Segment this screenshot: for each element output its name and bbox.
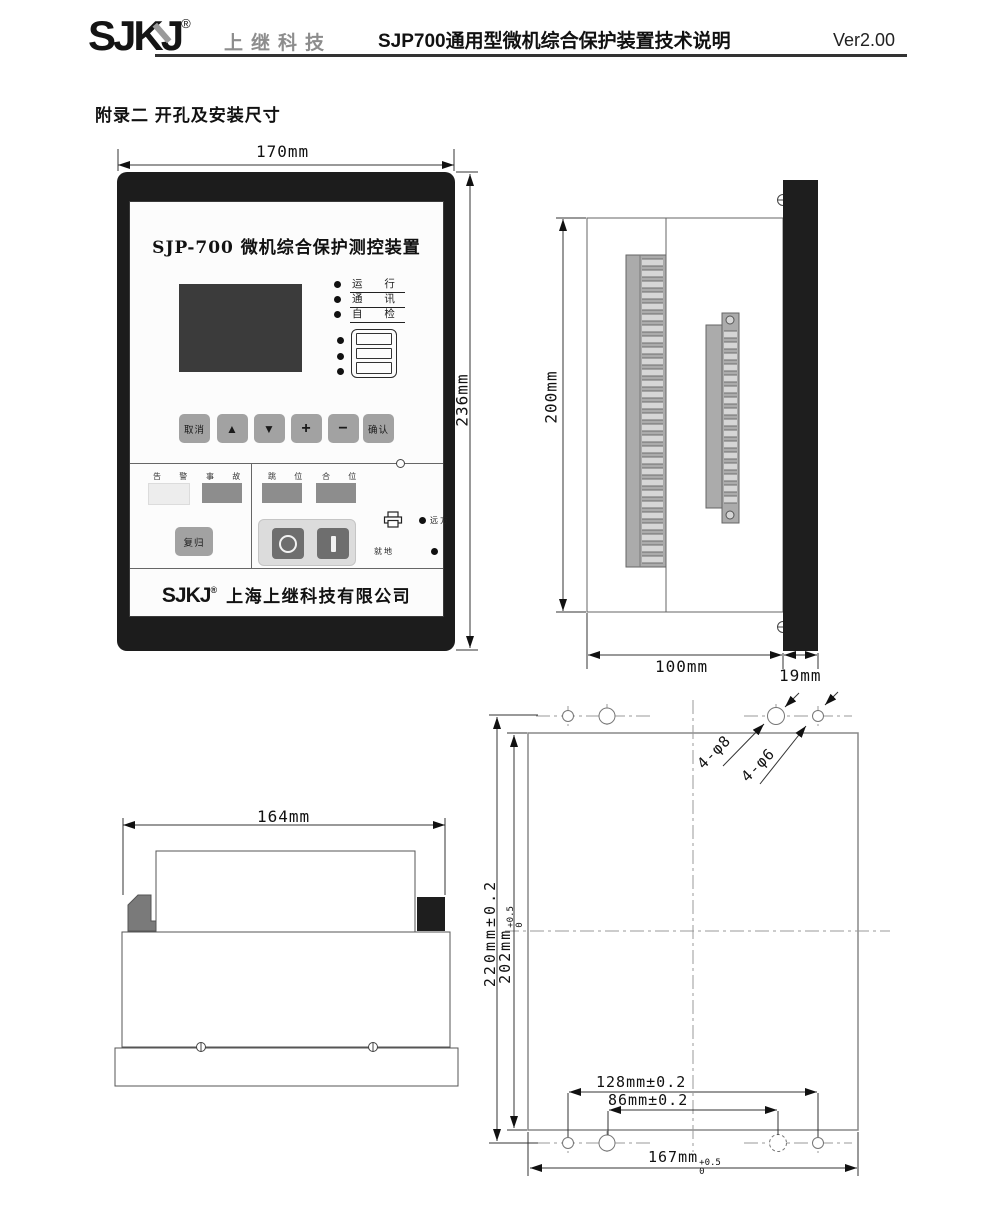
- tolerance-lower: 0: [699, 1168, 721, 1177]
- breaker-switch-group: [258, 519, 356, 566]
- panel-divider-bottom: [130, 568, 443, 569]
- dim-front-height: 236mm: [453, 373, 472, 426]
- label-slot-box: [351, 329, 397, 378]
- label-slot: [356, 333, 392, 345]
- local-led-icon: [431, 548, 438, 555]
- printer-icon: [383, 511, 403, 528]
- label-slot: [356, 362, 392, 374]
- panel-footer: SJKJ® 上海上继科技有限公司: [130, 582, 443, 608]
- slot-led-1-icon: [337, 337, 344, 344]
- panel-footer-logo: SJKJ®: [162, 584, 216, 608]
- dim-cutout-height-value: 202mm: [496, 929, 514, 984]
- comm-led-icon: [334, 296, 341, 303]
- remote-label: 远方: [430, 515, 450, 526]
- dim-cutout-height: 202mm+0.50: [496, 906, 524, 984]
- open-switch-button: [272, 528, 304, 559]
- confirm-button: 确认: [363, 414, 394, 443]
- fault-lamp-label: 事 故: [206, 471, 248, 482]
- label-slot: [356, 348, 392, 360]
- panel-title: SJP-700 微机综合保护测控装置: [130, 233, 443, 258]
- terminal-block-large-slots: [642, 257, 663, 565]
- panel-divider-vertical: [251, 463, 252, 568]
- dim-hole-span-outer: 128mm±0.2: [596, 1073, 686, 1091]
- selfcheck-led-label: 自 检: [350, 306, 405, 323]
- dim-cutout-width-value: 167mm: [648, 1148, 698, 1166]
- device-front-bezel: SJP-700 微机综合保护测控装置 运 行 通 讯 自 检: [117, 172, 455, 651]
- panel-seal-hole: [396, 459, 405, 468]
- selfcheck-led-icon: [334, 311, 341, 318]
- terminal-block-small-slots: [724, 329, 737, 505]
- close-lamp-label: 合 位: [322, 471, 364, 482]
- cancel-button: 取消: [179, 414, 210, 443]
- slot-led-2-icon: [337, 353, 344, 360]
- dim-hole-span-inner: 86mm±0.2: [608, 1091, 688, 1109]
- panel-footer-logo-text: SJKJ: [162, 584, 211, 607]
- run-led-icon: [334, 281, 341, 288]
- trip-lamp: [262, 483, 302, 503]
- tolerance-lower: 0: [516, 906, 525, 928]
- dim-side-depth: 100mm: [655, 657, 708, 676]
- local-label: 就地: [374, 546, 394, 557]
- manual-page: SJKJ® 上继科技 SJP700通用型微机综合保护装置技术说明 Ver2.00…: [0, 0, 1000, 1225]
- bottom-view-outline: [115, 851, 458, 1086]
- open-symbol-icon: [279, 535, 297, 553]
- close-lamp: [316, 483, 356, 503]
- side-view-outline: [587, 180, 818, 651]
- dim-cutout-width: 167mm+0.50: [648, 1148, 721, 1176]
- dim-bottom-width: 164mm: [257, 807, 310, 826]
- remote-led-icon: [419, 517, 426, 524]
- down-button: ▼: [254, 414, 285, 443]
- plus-button: +: [291, 414, 322, 443]
- device-front-face: SJP-700 微机综合保护测控装置 运 行 通 讯 自 检: [129, 201, 444, 617]
- dim-side-bezel: 19mm: [779, 666, 822, 685]
- dim-side-height: 200mm: [542, 370, 561, 423]
- fault-lamp: [202, 483, 242, 503]
- slot-led-3-icon: [337, 368, 344, 375]
- minus-button: −: [328, 414, 359, 443]
- panel-footer-registered-icon: ®: [210, 585, 216, 595]
- trip-lamp-label: 跳 位: [268, 471, 310, 482]
- dim-front-width: 170mm: [256, 142, 309, 161]
- panel-footer-company: 上海上继科技有限公司: [226, 582, 411, 607]
- dim-cutout-width-tolerance: +0.50: [699, 1159, 721, 1176]
- led-row-selfcheck: 自 检: [334, 306, 405, 323]
- alarm-lamp-label: 告 警: [153, 471, 195, 482]
- reset-button: 复归: [175, 527, 213, 556]
- close-switch-button: [317, 528, 349, 559]
- lcd-screen: [179, 284, 302, 372]
- alarm-lamp: [148, 483, 190, 505]
- dim-cutout-height-tolerance: +0.50: [507, 906, 524, 928]
- close-symbol-icon: [331, 536, 336, 552]
- up-button: ▲: [217, 414, 248, 443]
